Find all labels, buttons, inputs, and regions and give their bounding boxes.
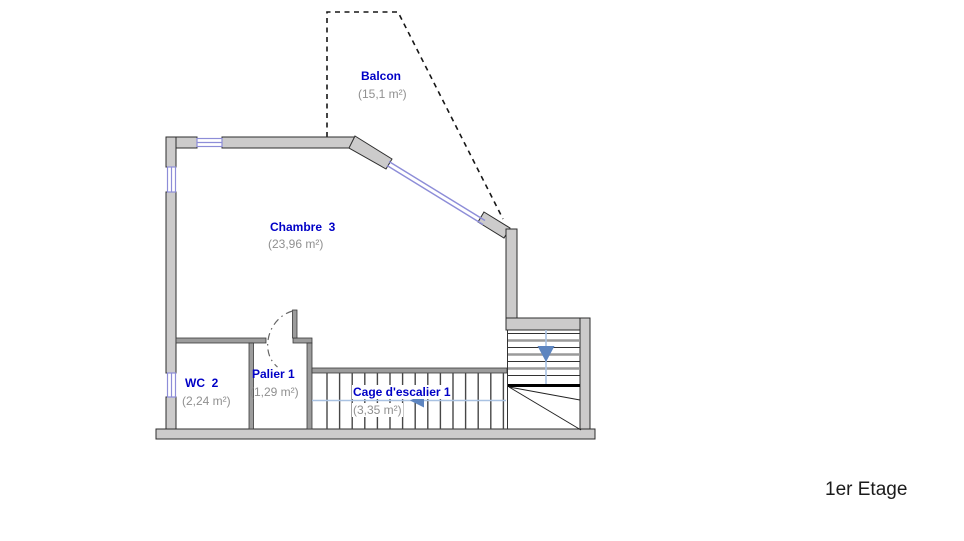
room-label-cage-escalier: Cage d'escalier 1 <box>352 385 452 399</box>
room-label-palier1: Palier 1 <box>252 367 295 381</box>
stairs-upper-flight <box>508 330 582 430</box>
interior-walls <box>176 310 507 429</box>
room-area-wc2: (2,24 m²) <box>182 394 231 408</box>
balcony-outline <box>327 12 503 219</box>
window-left-wall-icon <box>168 167 176 192</box>
diagonal-wall-upper <box>349 136 392 169</box>
room-area-chambre3: (23,96 m²) <box>268 237 323 251</box>
floor-plan-canvas: Balcon (15,1 m²) Chambre 3 (23,96 m²) WC… <box>0 0 964 541</box>
room-area-balcon: (15,1 m²) <box>358 87 407 101</box>
door-swing-arc-icon <box>268 311 293 367</box>
room-label-balcon: Balcon <box>361 69 401 83</box>
door-leaf <box>293 310 298 338</box>
room-label-wc2: WC 2 <box>185 376 218 390</box>
floor-plan-drawing <box>0 0 964 541</box>
diagonal-wall-lower <box>478 212 510 238</box>
floor-title: 1er Etage <box>825 479 907 501</box>
room-label-chambre3: Chambre 3 <box>270 220 335 234</box>
window-top-wall-icon <box>197 139 222 147</box>
glazing-diagonal-window-icon <box>387 162 485 225</box>
room-area-cage-escalier: (3,35 m²) <box>352 403 403 417</box>
room-area-palier1: (1,29 m²) <box>250 385 299 399</box>
windows <box>168 139 486 398</box>
window-wc-icon <box>168 373 176 397</box>
